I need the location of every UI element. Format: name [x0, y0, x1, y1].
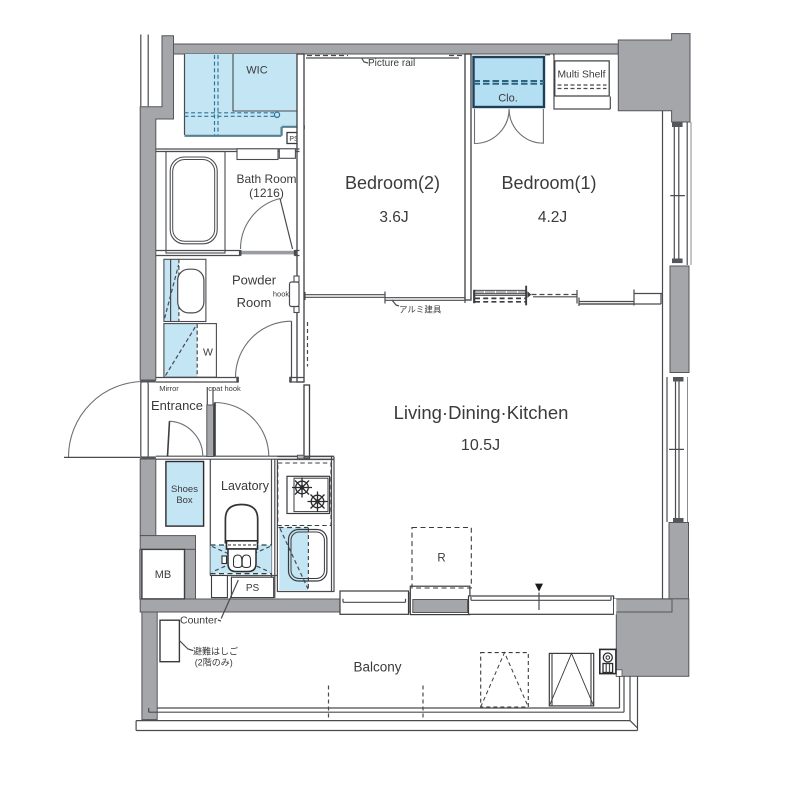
svg-text:Mirror: Mirror	[159, 384, 179, 393]
svg-text:coat hook: coat hook	[208, 384, 241, 393]
svg-text:Entrance: Entrance	[151, 398, 203, 413]
svg-text:10.5J: 10.5J	[461, 437, 500, 454]
svg-text:Clo.: Clo.	[498, 93, 518, 105]
svg-text:Shoes: Shoes	[171, 484, 198, 495]
svg-text:(1216): (1216)	[249, 186, 284, 200]
svg-text:4.2J: 4.2J	[538, 209, 567, 226]
svg-text:避難はしご: 避難はしご	[193, 646, 238, 657]
svg-text:(2階のみ): (2階のみ)	[195, 658, 233, 668]
svg-text:MB: MB	[155, 569, 172, 581]
svg-text:Multi Shelf: Multi Shelf	[557, 70, 605, 81]
svg-text:Room: Room	[237, 295, 272, 310]
svg-text:Counter: Counter	[180, 615, 218, 627]
svg-text:Living·Dining·Kitchen: Living·Dining·Kitchen	[394, 402, 569, 423]
svg-text:Picture rail: Picture rail	[368, 58, 415, 69]
svg-text:Lavatory: Lavatory	[221, 479, 270, 493]
svg-text:Bath Room: Bath Room	[236, 172, 296, 186]
svg-text:3.6J: 3.6J	[379, 209, 408, 226]
svg-text:Box: Box	[176, 495, 193, 506]
svg-text:Bedroom(2): Bedroom(2)	[345, 173, 440, 193]
svg-text:アルミ建具: アルミ建具	[399, 305, 442, 315]
svg-text:Balcony: Balcony	[353, 660, 401, 675]
svg-text:W: W	[203, 347, 213, 359]
svg-text:Bedroom(1): Bedroom(1)	[501, 173, 596, 193]
svg-text:Powder: Powder	[232, 273, 277, 288]
svg-text:PS: PS	[246, 583, 260, 594]
svg-text:hook: hook	[273, 290, 290, 299]
svg-text:WIC: WIC	[246, 65, 267, 77]
svg-text:R: R	[437, 553, 445, 565]
